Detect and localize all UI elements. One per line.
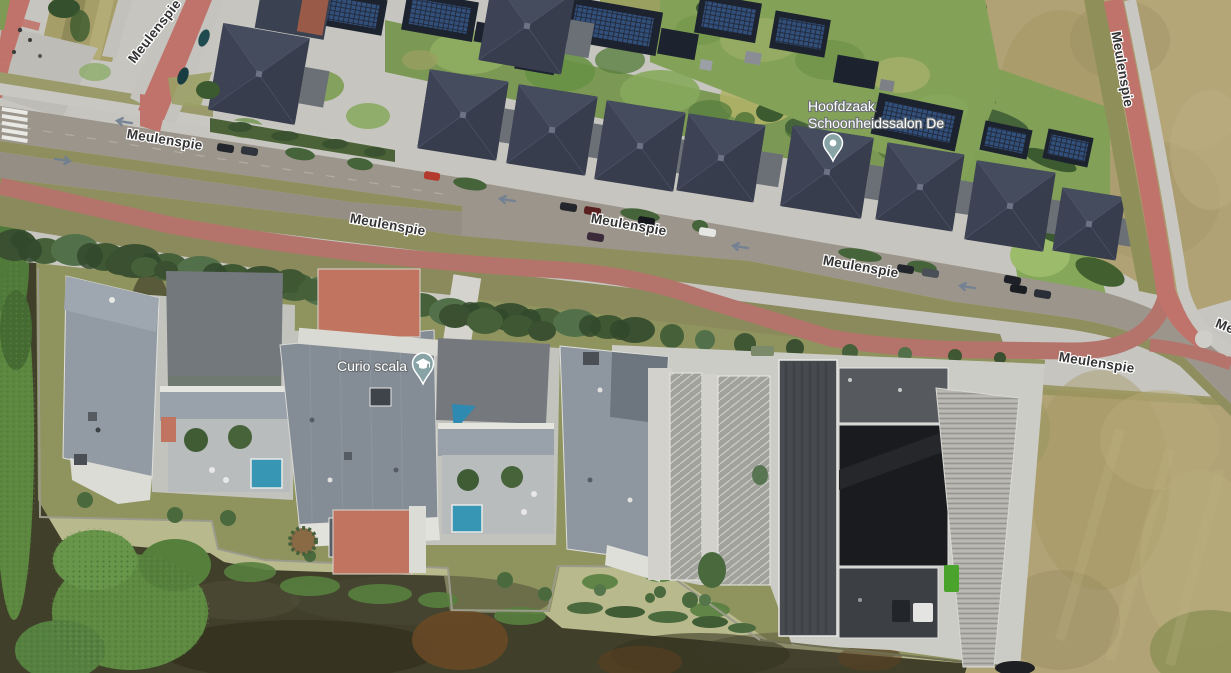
svg-text:Hoofdzaak: Hoofdzaak	[808, 98, 876, 114]
svg-text:Schoonheidssalon De: Schoonheidssalon De	[808, 115, 944, 131]
svg-text:Curio scala: Curio scala	[337, 358, 407, 374]
